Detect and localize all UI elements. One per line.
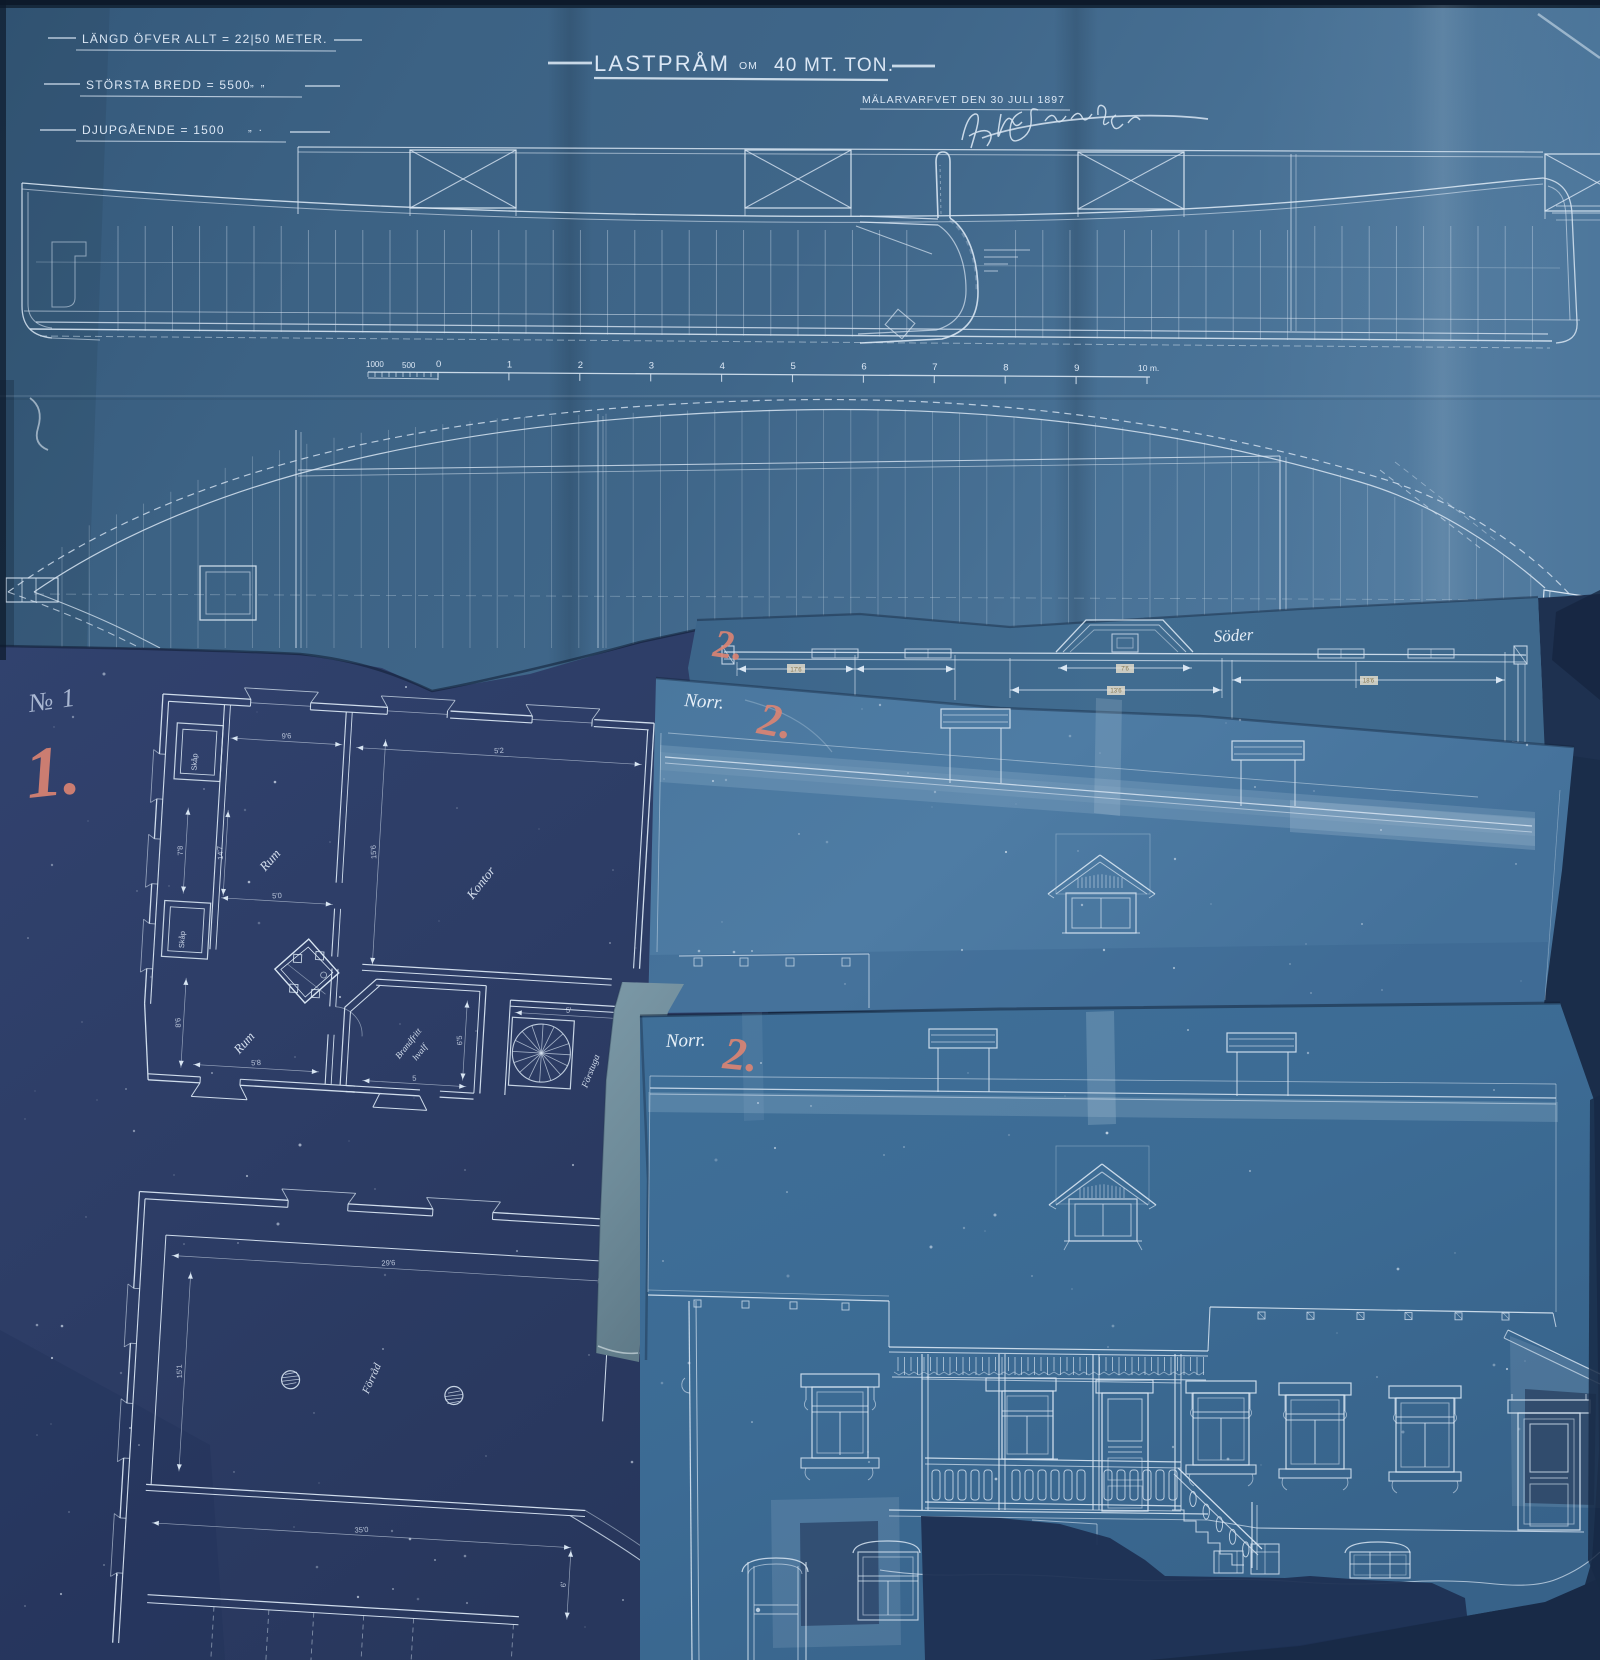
svg-text:6: 6 (861, 362, 866, 373)
svg-text:5: 5 (791, 361, 796, 372)
svg-text:STÖRSTA BREDD = 5500: STÖRSTA BREDD = 5500 (86, 78, 251, 92)
svg-text:4: 4 (720, 361, 725, 372)
svg-text:18'6: 18'6 (1363, 679, 1375, 685)
svg-text:OM: OM (739, 60, 758, 72)
svg-text:2.: 2. (710, 620, 747, 669)
svg-text:5': 5' (566, 1005, 573, 1014)
svg-text:8: 8 (1003, 363, 1008, 374)
svg-text:8'6: 8'6 (173, 1018, 182, 1028)
svg-text:5: 5 (412, 1074, 417, 1083)
svg-text:9'6: 9'6 (281, 731, 291, 740)
svg-text:15'1: 15'1 (175, 1364, 185, 1378)
svg-text:6'5: 6'5 (455, 1035, 464, 1045)
svg-text:Skåp: Skåp (190, 753, 200, 771)
svg-text:5'2: 5'2 (494, 746, 504, 755)
svg-text:14'7: 14'7 (215, 846, 225, 860)
svg-text:1.: 1. (21, 729, 83, 814)
svg-text:35'0: 35'0 (354, 1525, 368, 1535)
svg-text:7'6: 7'6 (1121, 667, 1129, 673)
svg-text:5'8: 5'8 (251, 1058, 261, 1067)
svg-text:1: 1 (507, 359, 512, 370)
svg-text:Norr.: Norr. (664, 1030, 705, 1052)
svg-text:40 MT. TON.: 40 MT. TON. (774, 55, 894, 76)
svg-text:2: 2 (578, 360, 583, 371)
svg-text:13'6: 13'6 (1110, 689, 1122, 695)
svg-text:MÄLARVARFVET DEN 30 JULI 1897: MÄLARVARFVET DEN 30 JULI 1897 (862, 94, 1065, 106)
svg-text:2.: 2. (720, 1027, 761, 1081)
svg-text:DJUPGÅENDE = 1500: DJUPGÅENDE = 1500 (82, 122, 225, 137)
svg-text:17'6: 17'6 (790, 668, 802, 674)
svg-text:6': 6' (559, 1581, 568, 1588)
svg-text:15'6: 15'6 (369, 845, 379, 859)
svg-text:0: 0 (436, 359, 441, 370)
svg-text:500: 500 (402, 361, 416, 370)
svg-text:LASTPRÅM: LASTPRÅM (594, 51, 730, 76)
svg-text:LÄNGD ÖFVER ALLT = 22|50 METER: LÄNGD ÖFVER ALLT = 22|50 METER. (82, 32, 328, 46)
svg-text:1000: 1000 (366, 360, 384, 369)
svg-text:5'0: 5'0 (272, 891, 282, 900)
svg-text:7'8: 7'8 (176, 845, 185, 855)
svg-text:„ „: „ „ (250, 77, 266, 89)
svg-text:Söder: Söder (1213, 625, 1254, 646)
svg-text:10 m.: 10 m. (1138, 363, 1159, 373)
svg-text:7: 7 (932, 362, 937, 373)
svg-text:3: 3 (649, 360, 654, 371)
svg-text:29'6: 29'6 (381, 1258, 395, 1268)
svg-text:9: 9 (1074, 363, 1079, 374)
svg-text:„ .: „ . (248, 122, 264, 134)
svg-text:Norr.: Norr. (683, 690, 725, 714)
svg-text:Skåp: Skåp (177, 931, 187, 949)
